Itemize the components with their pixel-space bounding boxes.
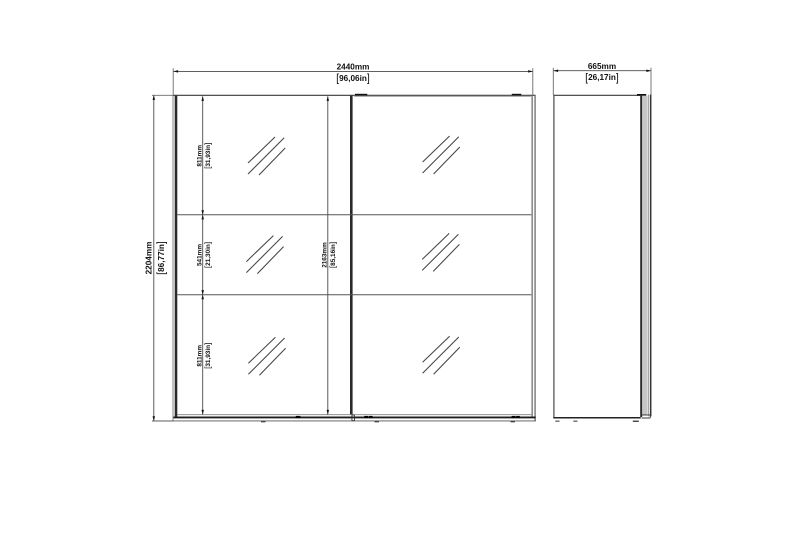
svg-text:665mm: 665mm [588,62,616,71]
svg-text:2204mm: 2204mm [145,242,154,275]
svg-text:2163mm: 2163mm [322,242,329,268]
svg-text:[86,77in]: [86,77in] [156,241,168,275]
svg-text:[31,93in]: [31,93in] [203,343,212,369]
svg-text:[85,16in]: [85,16in] [328,242,337,268]
svg-text:[31,93in]: [31,93in] [203,143,212,169]
svg-text:[96,06in]: [96,06in] [336,73,370,85]
svg-text:2440mm: 2440mm [337,63,370,72]
svg-text:[26,17in]: [26,17in] [585,72,619,84]
svg-text:541mm: 541mm [197,244,204,266]
svg-text:[21,30in]: [21,30in] [203,242,212,268]
svg-text:811mm: 811mm [197,145,204,167]
svg-text:811mm: 811mm [197,345,204,367]
